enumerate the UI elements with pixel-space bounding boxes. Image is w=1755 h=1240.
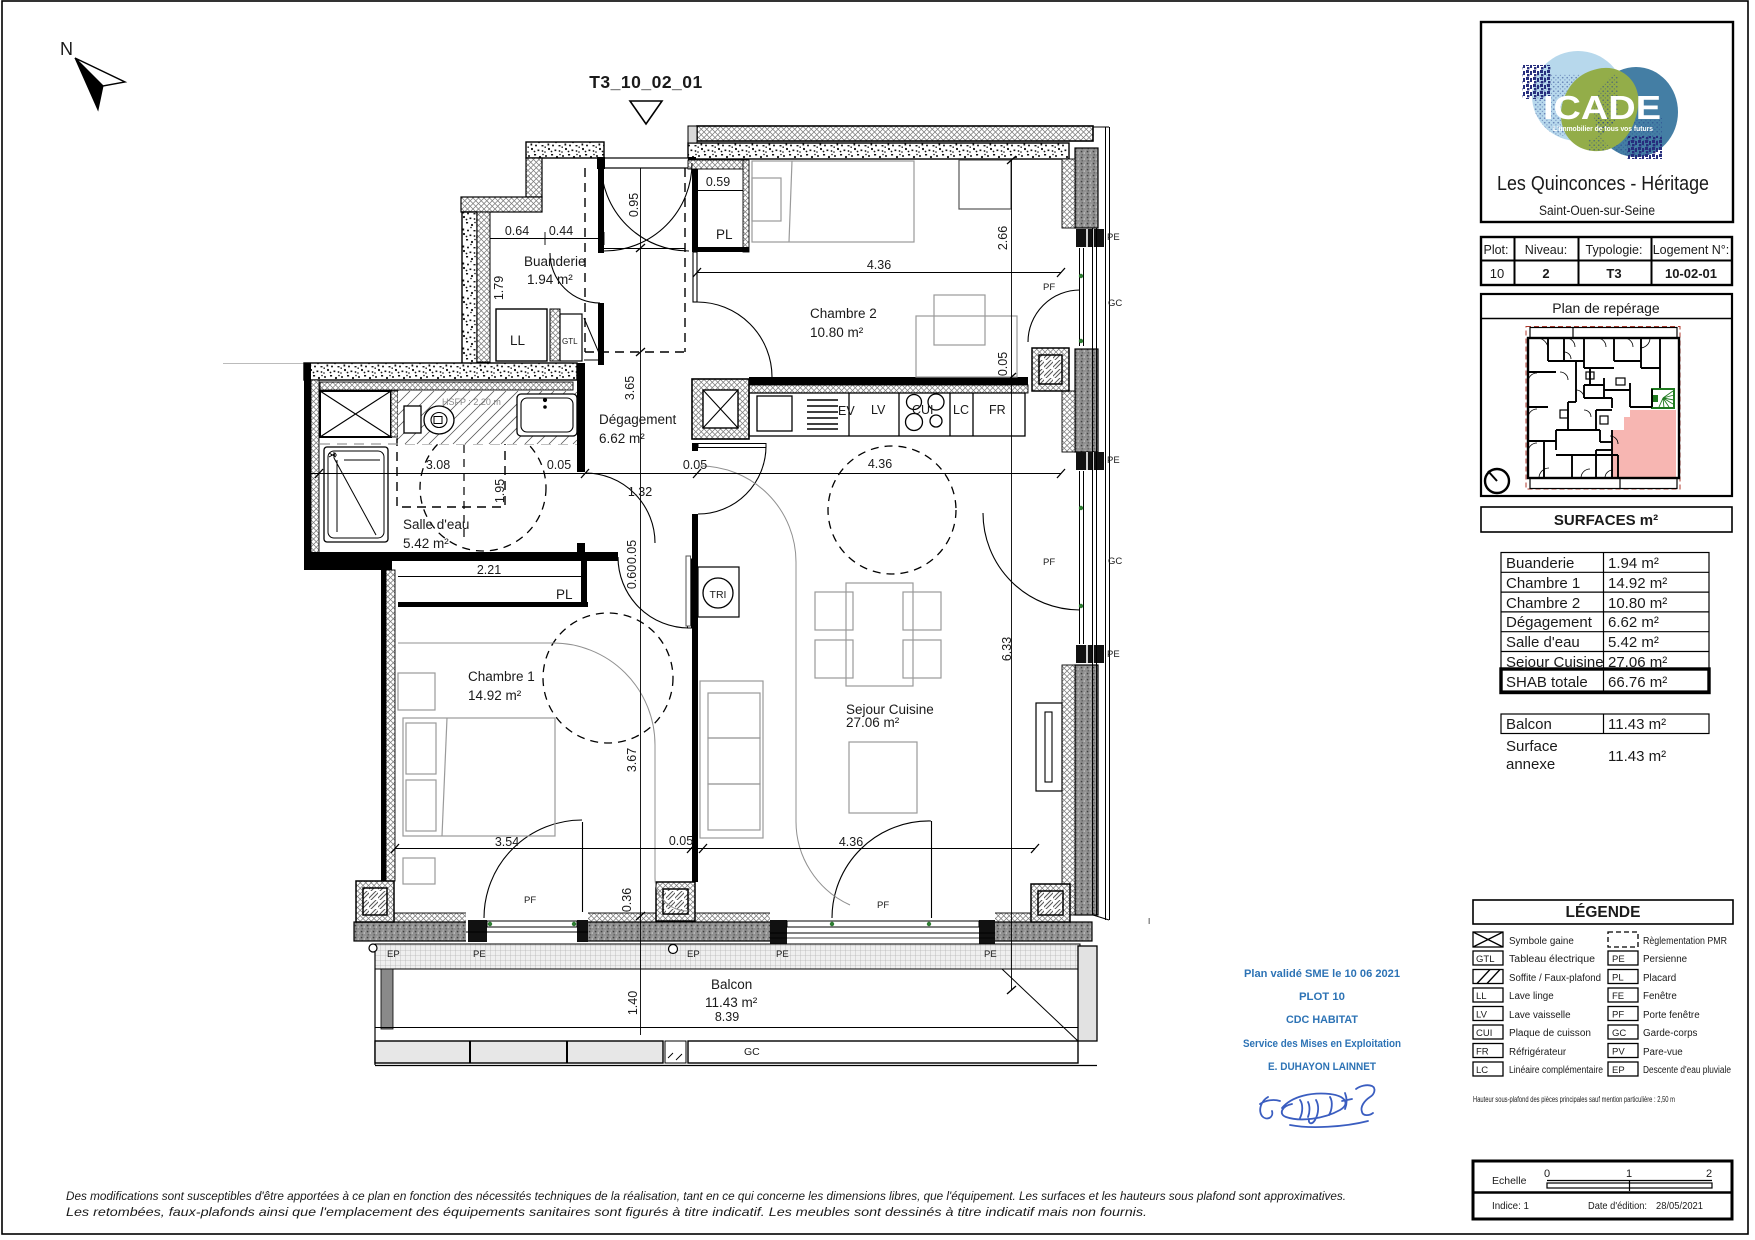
svg-text:1.94 m²: 1.94 m²: [1608, 555, 1659, 572]
svg-text:I: I: [1148, 917, 1150, 926]
svg-text:LL: LL: [1476, 991, 1487, 1002]
svg-text:Dégagement: Dégagement: [1506, 614, 1593, 631]
svg-text:LÉGENDE: LÉGENDE: [1566, 904, 1641, 921]
svg-text:3.65: 3.65: [623, 376, 637, 400]
svg-text:Lave vaisselle: Lave vaisselle: [1509, 1010, 1571, 1021]
svg-text:SURFACES m²: SURFACES m²: [1554, 512, 1658, 529]
svg-text:11.43 m²: 11.43 m²: [1608, 716, 1666, 733]
svg-text:Balcon: Balcon: [1506, 716, 1552, 733]
svg-text:27.06 m²: 27.06 m²: [846, 715, 900, 730]
svg-text:GC: GC: [1612, 1028, 1626, 1039]
svg-text:EV: EV: [838, 404, 855, 418]
svg-text:0.05: 0.05: [669, 834, 693, 848]
svg-text:28/05/2021: 28/05/2021: [1656, 1200, 1703, 1212]
svg-text:Soffite / Faux-plafond: Soffite / Faux-plafond: [1509, 973, 1601, 984]
svg-text:0.59: 0.59: [706, 175, 730, 189]
svg-text:Tableau électrique: Tableau électrique: [1509, 954, 1596, 965]
svg-text:11.43 m²: 11.43 m²: [1608, 748, 1666, 765]
svg-text:Dégagement: Dégagement: [599, 412, 677, 427]
svg-text:2: 2: [1706, 1168, 1712, 1180]
svg-text:HSFP : 2.20 m: HSFP : 2.20 m: [442, 397, 501, 407]
svg-text:GC: GC: [1108, 556, 1122, 567]
svg-text:Plot:: Plot:: [1483, 243, 1508, 257]
svg-text:4.36: 4.36: [868, 457, 892, 471]
svg-text:Surface: Surface: [1506, 738, 1558, 755]
svg-text:1.79: 1.79: [492, 276, 506, 300]
svg-text:PLOT 10: PLOT 10: [1299, 991, 1345, 1003]
svg-text:4.36: 4.36: [867, 258, 891, 272]
svg-text:PL: PL: [1612, 973, 1624, 984]
svg-text:FE: FE: [1612, 991, 1624, 1002]
svg-text:1.94 m²: 1.94 m²: [527, 272, 573, 287]
svg-text:PV: PV: [1612, 1047, 1625, 1058]
svg-text:Plan validé SME le 10 06 2021: Plan validé SME le 10 06 2021: [1244, 968, 1400, 980]
svg-text:6.62 m²: 6.62 m²: [599, 431, 645, 446]
svg-text:Chambre 1: Chambre 1: [468, 669, 535, 684]
svg-text:Hauteur sous-plafond des pièce: Hauteur sous-plafond des pièces principa…: [1473, 1095, 1675, 1104]
svg-text:Persienne: Persienne: [1643, 954, 1688, 965]
svg-text:Des modifications sont suscept: Des modifications sont susceptibles d'êt…: [66, 1190, 1346, 1203]
svg-text:Placard: Placard: [1643, 973, 1676, 984]
svg-text:Symbole gaine: Symbole gaine: [1509, 936, 1574, 947]
svg-text:6.62 m²: 6.62 m²: [1608, 614, 1659, 631]
svg-text:Règlementation PMR: Règlementation PMR: [1643, 936, 1727, 947]
svg-text:Echelle: Echelle: [1492, 1175, 1527, 1187]
svg-text:SHAB totale: SHAB totale: [1506, 674, 1588, 691]
svg-text:0: 0: [1544, 1168, 1550, 1180]
svg-text:8.39: 8.39: [715, 1010, 739, 1024]
svg-text:Buanderie: Buanderie: [1506, 555, 1574, 572]
svg-text:LV: LV: [871, 403, 886, 417]
svg-text:PL: PL: [716, 227, 733, 242]
svg-text:Balcon: Balcon: [711, 977, 752, 992]
svg-text:PE: PE: [473, 949, 486, 960]
svg-text:1.32: 1.32: [628, 485, 652, 499]
svg-text:Salle d'eau: Salle d'eau: [1506, 634, 1580, 651]
svg-text:Porte fenêtre: Porte fenêtre: [1643, 1010, 1700, 1021]
svg-text:CUI: CUI: [912, 403, 934, 417]
svg-text:PF: PF: [524, 895, 536, 906]
svg-text:0.60: 0.60: [625, 565, 639, 589]
svg-text:2.66: 2.66: [996, 226, 1010, 250]
svg-text:27.06 m²: 27.06 m²: [1608, 654, 1667, 671]
svg-text:Linéaire complémentaire: Linéaire complémentaire: [1509, 1065, 1603, 1076]
svg-text:GTL: GTL: [562, 337, 578, 346]
svg-text:10.80 m²: 10.80 m²: [810, 325, 864, 340]
svg-text:2: 2: [1542, 266, 1549, 281]
svg-text:LC: LC: [1476, 1065, 1488, 1076]
svg-text:PE: PE: [984, 949, 997, 960]
svg-text:annexe: annexe: [1506, 756, 1555, 773]
svg-text:Salle d'eau: Salle d'eau: [403, 517, 469, 532]
svg-text:10: 10: [1490, 266, 1504, 281]
svg-text:PF: PF: [877, 900, 889, 911]
svg-text:3.54: 3.54: [495, 835, 519, 849]
svg-text:0.05: 0.05: [547, 458, 571, 472]
svg-text:3.67: 3.67: [625, 748, 639, 772]
svg-text:CDC HABITAT: CDC HABITAT: [1286, 1014, 1358, 1026]
svg-text:TRI: TRI: [710, 589, 727, 601]
svg-text:LC: LC: [953, 403, 969, 417]
svg-text:Sejour Cuisine: Sejour Cuisine: [1506, 654, 1604, 671]
svg-text:1: 1: [1626, 1168, 1632, 1180]
svg-text:0.36: 0.36: [620, 888, 634, 912]
svg-text:N: N: [60, 39, 73, 59]
svg-text:Les Quinconces - Héritage: Les Quinconces - Héritage: [1497, 173, 1709, 195]
svg-text:Garde-corps: Garde-corps: [1643, 1028, 1698, 1039]
svg-text:Réfrigérateur: Réfrigérateur: [1509, 1047, 1567, 1058]
svg-text:0.05: 0.05: [996, 352, 1010, 376]
svg-text:PE: PE: [1107, 232, 1120, 243]
svg-text:Niveau:: Niveau:: [1525, 243, 1567, 257]
svg-text:GTL: GTL: [1476, 954, 1494, 965]
svg-text:PE: PE: [776, 949, 789, 960]
svg-text:1.40: 1.40: [626, 991, 640, 1015]
svg-text:0.05: 0.05: [683, 458, 707, 472]
svg-text:PF: PF: [1043, 282, 1055, 293]
svg-text:5.42 m²: 5.42 m²: [1608, 634, 1659, 651]
svg-text:Typologie:: Typologie:: [1586, 243, 1643, 257]
svg-text:PE: PE: [1107, 649, 1120, 660]
svg-text:LV: LV: [1476, 1010, 1488, 1021]
svg-text:PE: PE: [1107, 455, 1120, 466]
svg-text:Buanderie: Buanderie: [524, 254, 586, 269]
svg-text:GC: GC: [1108, 298, 1122, 309]
svg-text:Plan de repérage: Plan de repérage: [1552, 300, 1660, 316]
svg-text:CUI: CUI: [1476, 1028, 1492, 1039]
svg-text:Pare-vue: Pare-vue: [1643, 1047, 1683, 1058]
svg-text:EP: EP: [387, 949, 400, 960]
svg-text:T3: T3: [1606, 266, 1621, 281]
svg-text:3.08: 3.08: [426, 458, 450, 472]
svg-text:L'immobilier de tous vos futur: L'immobilier de tous vos futurs: [1553, 124, 1653, 133]
svg-text:T3_10_02_01: T3_10_02_01: [589, 72, 703, 92]
svg-text:10-02-01: 10-02-01: [1665, 266, 1717, 281]
svg-text:FR: FR: [1476, 1047, 1489, 1058]
svg-text:14.92 m²: 14.92 m²: [1608, 575, 1667, 592]
svg-text:E. DUHAYON LAINNET: E. DUHAYON LAINNET: [1268, 1061, 1376, 1073]
svg-text:11.43 m²: 11.43 m²: [705, 995, 758, 1010]
svg-text:66.76 m²: 66.76 m²: [1608, 674, 1667, 691]
svg-text:Saint-Ouen-sur-Seine: Saint-Ouen-sur-Seine: [1539, 203, 1655, 218]
svg-text:0.44: 0.44: [549, 224, 573, 238]
svg-text:PF: PF: [1043, 557, 1055, 568]
svg-text:Les retombées, faux-plafonds a: Les retombées, faux-plafonds ainsi que l…: [66, 1206, 1147, 1219]
svg-text:0.64: 0.64: [505, 224, 529, 238]
svg-text:14.92 m²: 14.92 m²: [468, 688, 522, 703]
svg-text:10.80 m²: 10.80 m²: [1608, 595, 1667, 612]
svg-text:PF: PF: [1612, 1010, 1624, 1021]
svg-text:FR: FR: [989, 403, 1006, 417]
svg-text:Chambre 2: Chambre 2: [810, 306, 877, 321]
svg-text:LL: LL: [510, 333, 526, 348]
svg-text:Date d'édition:: Date d'édition:: [1588, 1200, 1647, 1212]
svg-text:4.36: 4.36: [839, 835, 863, 849]
svg-text:PE: PE: [1612, 954, 1625, 965]
svg-text:Fenêtre: Fenêtre: [1643, 991, 1677, 1002]
svg-text:Chambre 1: Chambre 1: [1506, 575, 1580, 592]
svg-text:0.05: 0.05: [625, 540, 639, 564]
svg-text:6.33: 6.33: [1000, 637, 1014, 661]
svg-text:ICADE: ICADE: [1543, 89, 1661, 126]
svg-text:Plaque de cuisson: Plaque de cuisson: [1509, 1028, 1591, 1039]
svg-text:Indice: 1: Indice: 1: [1492, 1200, 1529, 1212]
svg-text:5.42 m²: 5.42 m²: [403, 536, 449, 551]
svg-text:1.95: 1.95: [493, 479, 507, 503]
svg-text:0.95: 0.95: [627, 193, 641, 217]
svg-text:Chambre 2: Chambre 2: [1506, 595, 1580, 612]
svg-text:2.21: 2.21: [477, 563, 501, 577]
svg-text:Service des Mises en Exploitat: Service des Mises en Exploitation: [1243, 1038, 1401, 1050]
svg-text:EP: EP: [687, 949, 700, 960]
svg-text:GC: GC: [744, 1046, 760, 1058]
svg-text:Descente d'eau pluviale: Descente d'eau pluviale: [1643, 1065, 1731, 1076]
svg-text:Logement N°:: Logement N°:: [1653, 243, 1730, 257]
svg-text:PL: PL: [556, 587, 573, 602]
svg-text:EP: EP: [1612, 1065, 1625, 1076]
svg-text:Lave linge: Lave linge: [1509, 991, 1554, 1002]
